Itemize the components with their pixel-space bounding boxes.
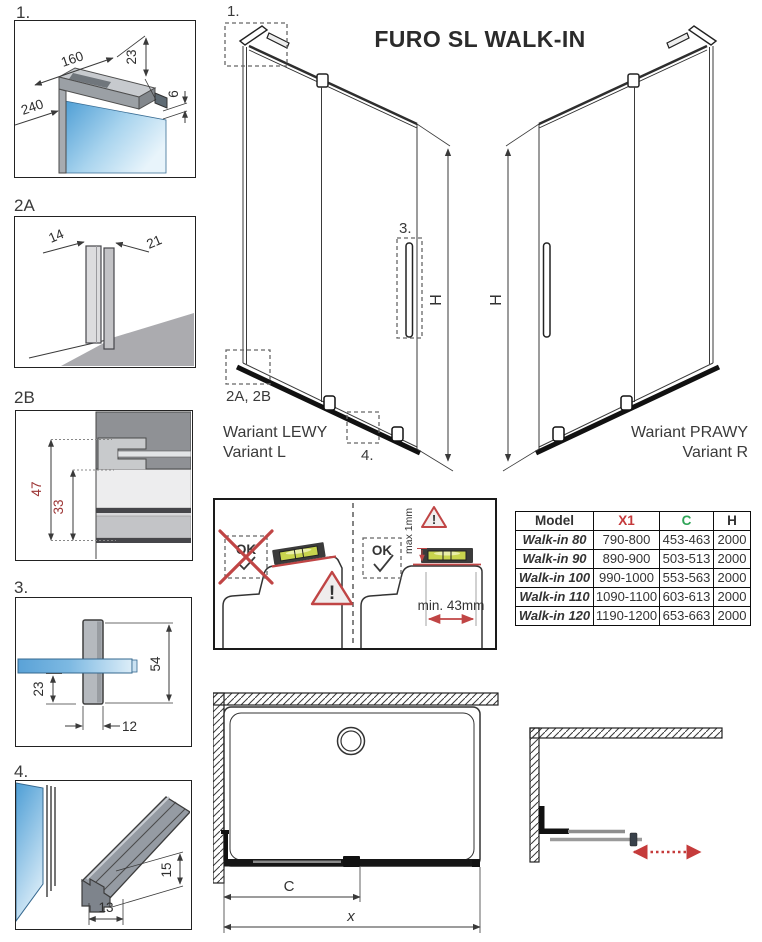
svg-text:Variant R: Variant R [682,444,748,461]
walls [530,728,722,862]
detail-markers: 1. 3. 2A, 2B 4. [225,3,422,464]
dimension-21: 21 [116,232,164,252]
svg-text:H: H [490,294,505,306]
detail-2b-panel: 47 33 [15,410,193,561]
wall-bracket [539,806,569,834]
detail-3-panel: 54 23 12 [15,597,192,747]
svg-text:Wariant PRAWY: Wariant PRAWY [631,424,748,441]
installation-sheet: 1. 160 [0,0,762,942]
table-header-c: C [660,512,714,531]
correct-example: OK max 1mm ! min. 43mm [361,507,484,648]
right-variant-diagram: H Wariant PRAWY Variant R [490,0,762,478]
top-rail-section [96,412,191,559]
table-header-h: H [714,512,751,531]
table-row: Walk-in 80 790-800 453-463 2000 [516,531,751,550]
glass-panel [65,101,166,173]
svg-text:12: 12 [122,719,137,734]
table-row: Walk-in 100 990-1000 553-563 2000 [516,569,751,588]
corner-slide-view [510,690,762,942]
svg-text:OK: OK [372,543,393,558]
svg-text:!: ! [432,512,436,527]
wrong-example: OK ! [220,531,352,648]
dimension-12: 12 [65,706,137,734]
svg-text:3.: 3. [399,220,412,237]
svg-text:Variant L: Variant L [223,444,286,461]
dimension-14: 14 [43,226,84,253]
table-header-model: Model [516,512,594,531]
detail-3-label: 3. [14,578,28,598]
svg-text:47: 47 [29,481,44,496]
svg-text:15: 15 [159,862,174,877]
detail-2b-label: 2B [14,388,35,408]
dimension-c: C [224,867,360,933]
svg-text:H: H [428,294,445,306]
tray-plan-view: C x [213,670,510,942]
glass-panel [18,659,137,673]
glass-edge-profiles [86,246,114,349]
shower-tray [224,707,480,866]
svg-text:1.: 1. [227,3,240,20]
detail-4-label: 4. [14,762,28,782]
table-row: Walk-in 90 890-900 503-513 2000 [516,550,751,569]
svg-text:Wariant LEWY: Wariant LEWY [223,424,328,441]
detail-1-panel: 160 23 240 6 [14,20,196,178]
svg-text:54: 54 [148,656,163,672]
dimension-23: 23 [31,674,76,705]
svg-text:240: 240 [19,96,45,118]
detail-2a-panel: 14 21 [14,216,196,368]
structure [536,26,719,453]
svg-text:160: 160 [59,48,85,70]
height-dimension: H [490,124,539,471]
caption: Wariant PRAWY Variant R [631,424,748,461]
detail-2a-drawing: 14 21 [15,217,194,366]
levelling-guide-drawing: OK ! OK max 1mm [215,500,495,648]
svg-text:23: 23 [31,681,46,696]
svg-text:4.: 4. [361,447,374,464]
detail-3-drawing: 54 23 12 [16,598,190,745]
table-header-row: Model X1 C H [516,512,751,531]
detail-2a-label: 2A [14,196,35,216]
size-table: Model X1 C H Walk-in 80 790-800 453-463 … [515,511,751,626]
levelling-guide-panel: OK ! OK max 1mm [213,498,497,650]
svg-text:2A, 2B: 2A, 2B [226,388,271,405]
glass-panel [16,783,55,921]
wall-profile [59,89,66,173]
detail-1-drawing: 160 23 240 6 [15,21,194,176]
door-handle [630,833,637,846]
svg-text:14: 14 [46,226,66,246]
svg-text:6: 6 [166,90,181,98]
detail-4-panel: 13 15 [15,780,192,930]
svg-text:C: C [284,878,295,895]
svg-text:13: 13 [98,900,113,915]
svg-text:max 1mm: max 1mm [403,508,415,554]
table-row: Walk-in 120 1190-1200 653-663 2000 [516,607,751,626]
table-header-x1: X1 [594,512,660,531]
dimension-x: x [224,867,480,933]
detail-2b-drawing: 47 33 [16,411,191,559]
table-row: Walk-in 110 1090-1100 603-613 2000 [516,588,751,607]
svg-text:min. 43mm: min. 43mm [418,598,485,613]
svg-text:x: x [346,908,355,925]
caption: Wariant LEWY Variant L [223,424,328,461]
detail-4-drawing: 13 15 [16,781,190,928]
svg-text:33: 33 [51,499,66,514]
svg-text:!: ! [329,583,335,604]
dimension-240: 240 [15,96,58,125]
left-variant-diagram: 1. 3. 2A, 2B 4. H Wariant LEWY Variant L [213,0,463,478]
svg-text:21: 21 [144,232,164,252]
svg-text:23: 23 [124,49,139,64]
